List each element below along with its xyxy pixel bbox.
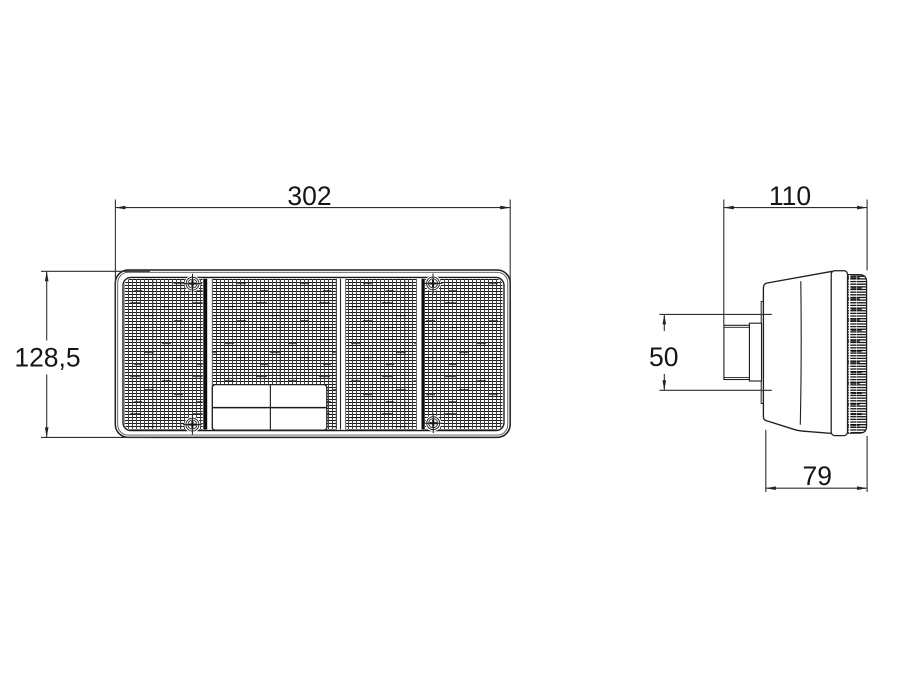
svg-text:110: 110 [769,181,811,211]
svg-text:50: 50 [649,342,678,372]
svg-text:302: 302 [287,181,331,211]
svg-text:128,5: 128,5 [14,342,80,372]
svg-text:79: 79 [803,461,832,491]
